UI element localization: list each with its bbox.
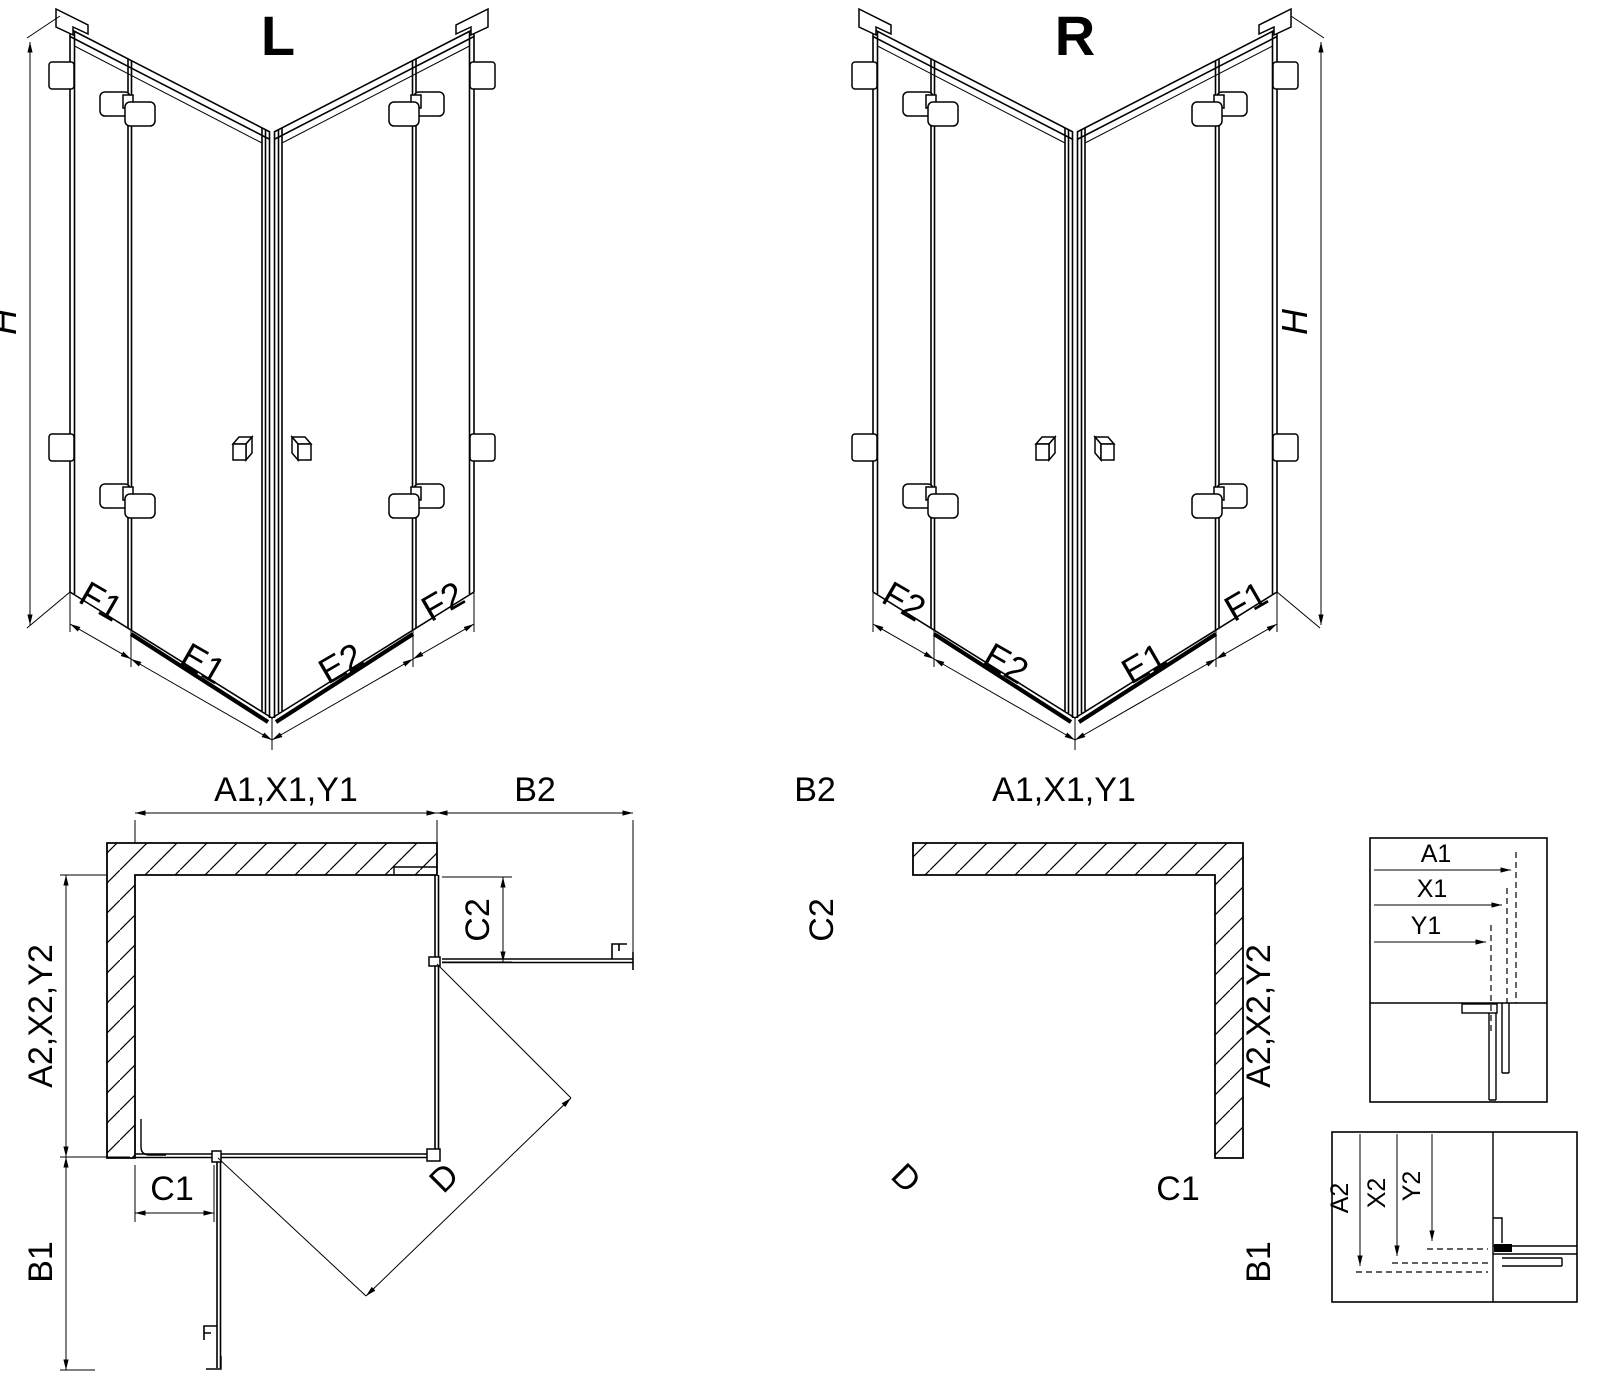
detail-label-x2: X2: [1363, 1178, 1391, 1209]
wall-section: [913, 843, 1243, 1158]
dim-label-c2: C2: [459, 898, 497, 941]
dim-label-diagonal: D: [884, 1156, 928, 1200]
dim-label-diagonal: D: [422, 1156, 466, 1200]
dim-label-f1: F1: [73, 573, 130, 630]
wall-section: [107, 843, 437, 1158]
detail-label-x1: X1: [1417, 875, 1448, 903]
dim-label-b2: B2: [794, 771, 836, 809]
dim-label-height: H: [1274, 308, 1315, 335]
dim-label-depth: A2,X2,Y2: [22, 944, 60, 1088]
dim-label-e2: E2: [311, 634, 370, 692]
dim-label-f2: F2: [876, 573, 933, 630]
dim-label-depth: A2,X2,Y2: [1240, 944, 1278, 1088]
dim-label-e1: E1: [174, 634, 233, 692]
shower-enclosure-technical-drawing: L H F1 E1 E2 F2 R H F2 E2 E1 F1 A1,X1,Y1…: [0, 0, 1600, 1373]
dim-label-width: A1,X1,Y1: [992, 771, 1136, 809]
dim-label-c1: C1: [150, 1170, 193, 1208]
detail-label-y1: Y1: [1411, 912, 1442, 940]
drawing-page: L H F1 E1 E2 F2 R H F2 E2 E1 F1 A1,X1,Y1…: [0, 0, 1600, 1373]
dim-label-height: H: [0, 308, 24, 335]
dim-label-c2: C2: [803, 898, 841, 941]
dim-label-f1: F1: [1217, 573, 1274, 630]
detail-view-depth: A2 X2 Y2: [1326, 1132, 1577, 1302]
plan-view-left: A1,X1,Y1 B2 C2 A2,X2,Y2 C1 B1 D: [22, 771, 633, 1370]
dim-label-width: A1,X1,Y1: [214, 771, 358, 809]
iso-view-right: R H F2 E2 E1 F1: [852, 4, 1324, 750]
detail-label-a1: A1: [1421, 840, 1452, 868]
detail-label-y2: Y2: [1398, 1171, 1426, 1202]
dim-label-c1: C1: [1156, 1170, 1199, 1208]
iso-view-left: L H F1 E1 E2 F2: [0, 4, 495, 750]
plan-view-right: B2 A1,X1,Y1 C2 A2,X2,Y2 C1 B1 D: [794, 771, 1600, 1370]
dim-label-b1: B1: [1240, 1241, 1278, 1283]
dim-label-e2: E2: [977, 634, 1036, 692]
view-title-right: R: [1055, 4, 1095, 67]
view-title-left: L: [261, 4, 295, 67]
dim-label-f2: F2: [414, 573, 471, 630]
detail-label-a2: A2: [1326, 1183, 1354, 1214]
dim-label-e1: E1: [1114, 634, 1173, 692]
detail-view-width: A1 X1 Y1: [1370, 838, 1547, 1102]
dim-label-b2: B2: [514, 771, 556, 809]
dim-label-b1: B1: [22, 1241, 60, 1283]
